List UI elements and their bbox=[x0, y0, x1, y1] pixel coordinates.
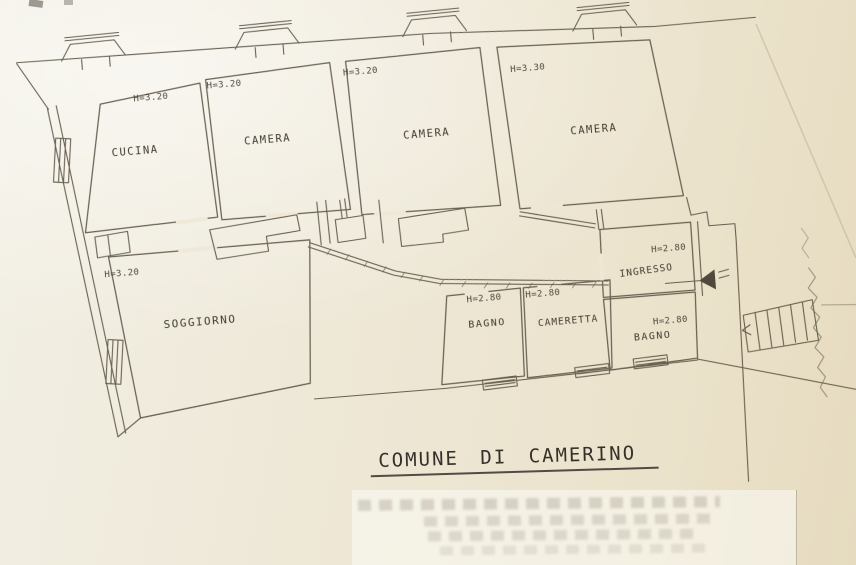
bottom-left-corner bbox=[117, 418, 142, 437]
ghost-text-block bbox=[352, 490, 797, 565]
top-left-wall-joint bbox=[17, 61, 49, 111]
lower-block-top-wall bbox=[308, 223, 608, 309]
corridor-outer-wall bbox=[729, 240, 755, 482]
room-outline-camera-3 bbox=[497, 33, 684, 209]
window-sill-symbol bbox=[401, 8, 468, 47]
ingresso-outer-wall bbox=[697, 222, 704, 296]
window-symbol bbox=[482, 376, 517, 390]
wall-pier bbox=[398, 208, 469, 246]
corridor-wall bbox=[519, 206, 596, 234]
scanned-floorplan-document: CUCINA CAMERA CAMERA CAMERA SOGGIORNO BA… bbox=[0, 0, 856, 565]
ghost-row bbox=[358, 496, 720, 511]
staircase-icon bbox=[740, 299, 819, 352]
room-outline-soggiorno bbox=[108, 240, 323, 420]
stepped-wall bbox=[687, 194, 737, 244]
ghost-row bbox=[440, 544, 706, 556]
pilaster bbox=[95, 231, 131, 258]
bottom-outer-wall bbox=[139, 352, 699, 418]
ghost-row bbox=[424, 513, 716, 526]
room-outline-cucina bbox=[74, 83, 218, 233]
room-outline-ingresso bbox=[598, 222, 696, 297]
break-line-zigzag bbox=[800, 228, 809, 258]
scan-artifact bbox=[64, 0, 73, 5]
window-sill-symbol bbox=[60, 32, 127, 71]
wall-pier bbox=[209, 215, 302, 260]
door-jamb-ticks bbox=[596, 209, 604, 229]
entrance-mark bbox=[719, 269, 730, 278]
break-line-zigzag bbox=[807, 267, 827, 397]
ground-line bbox=[698, 347, 856, 402]
window-sill-symbol bbox=[233, 20, 300, 59]
window-sill-symbol bbox=[571, 2, 638, 41]
ghost-row bbox=[428, 529, 700, 542]
scan-artifact bbox=[29, 0, 44, 8]
ground-line bbox=[822, 302, 856, 308]
